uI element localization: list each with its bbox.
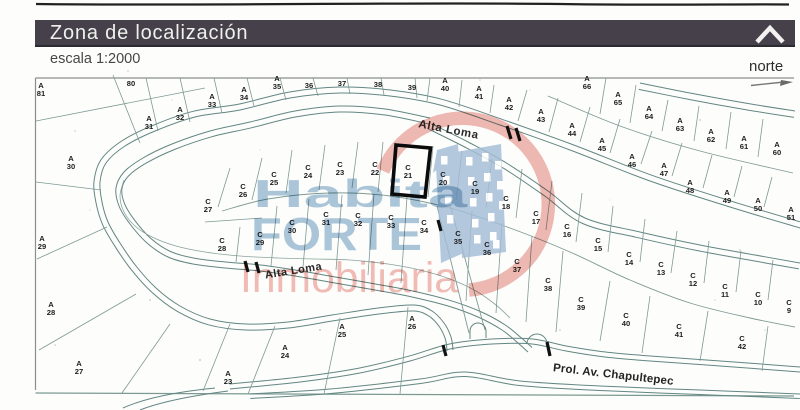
- svg-text:A50: A50: [754, 196, 762, 213]
- svg-text:A24: A24: [281, 343, 290, 360]
- svg-text:39: 39: [408, 83, 416, 92]
- svg-text:A66: A66: [583, 74, 591, 91]
- svg-text:A49: A49: [723, 188, 731, 205]
- svg-text:A28: A28: [47, 300, 55, 317]
- svg-text:A30: A30: [67, 154, 75, 171]
- svg-text:A35: A35: [273, 74, 282, 91]
- svg-text:C27: C27: [204, 197, 212, 214]
- svg-text:C13: C13: [657, 260, 665, 277]
- svg-text:C15: C15: [594, 236, 603, 253]
- svg-text:C9: C9: [786, 298, 792, 315]
- svg-text:C42: C42: [738, 334, 746, 351]
- svg-text:A48: A48: [686, 178, 694, 195]
- svg-text:C26: C26: [239, 182, 247, 199]
- svg-text:C17: C17: [532, 209, 540, 226]
- svg-text:A31: A31: [145, 114, 154, 131]
- svg-text:C39: C39: [577, 295, 585, 312]
- svg-text:A33: A33: [208, 92, 216, 109]
- svg-text:C16: C16: [563, 222, 571, 239]
- svg-text:C18: C18: [502, 194, 510, 211]
- svg-text:A65: A65: [614, 90, 623, 107]
- svg-text:C40: C40: [622, 311, 630, 328]
- svg-text:A25: A25: [338, 322, 347, 339]
- svg-text:A42: A42: [505, 95, 513, 112]
- svg-text:A23: A23: [224, 369, 232, 386]
- svg-text:C28: C28: [218, 236, 226, 253]
- svg-text:A34: A34: [240, 85, 249, 102]
- svg-text:A81: A81: [37, 81, 46, 98]
- svg-text:A47: A47: [660, 161, 668, 178]
- svg-text:FORTE: FORTE: [251, 208, 422, 260]
- svg-text:C11: C11: [721, 282, 730, 299]
- svg-text:A45: A45: [598, 136, 607, 153]
- svg-text:Inmobiliaria: Inmobiliaria: [240, 254, 458, 302]
- svg-text:A43: A43: [537, 107, 545, 124]
- svg-text:C14: C14: [625, 250, 634, 267]
- svg-text:A26: A26: [408, 314, 416, 331]
- svg-text:A63: A63: [676, 116, 684, 133]
- svg-text:A32: A32: [176, 105, 184, 122]
- svg-text:C10: C10: [754, 290, 762, 307]
- svg-text:36: 36: [305, 81, 313, 90]
- svg-text:C38: C38: [544, 276, 552, 293]
- svg-text:A27: A27: [75, 359, 83, 376]
- svg-text:C41: C41: [675, 322, 684, 339]
- svg-text:80: 80: [127, 79, 135, 88]
- svg-text:38: 38: [374, 80, 382, 89]
- svg-text:37: 37: [338, 79, 346, 88]
- svg-text:A51: A51: [787, 205, 796, 222]
- svg-text:A64: A64: [645, 104, 654, 121]
- svg-text:A29: A29: [38, 234, 46, 251]
- svg-text:A62: A62: [707, 127, 715, 144]
- svg-text:A61: A61: [740, 134, 749, 151]
- svg-text:C12: C12: [689, 271, 697, 288]
- svg-text:A46: A46: [628, 152, 636, 169]
- svg-text:A60: A60: [773, 140, 781, 157]
- svg-text:A41: A41: [475, 84, 484, 101]
- svg-text:A44: A44: [568, 121, 577, 138]
